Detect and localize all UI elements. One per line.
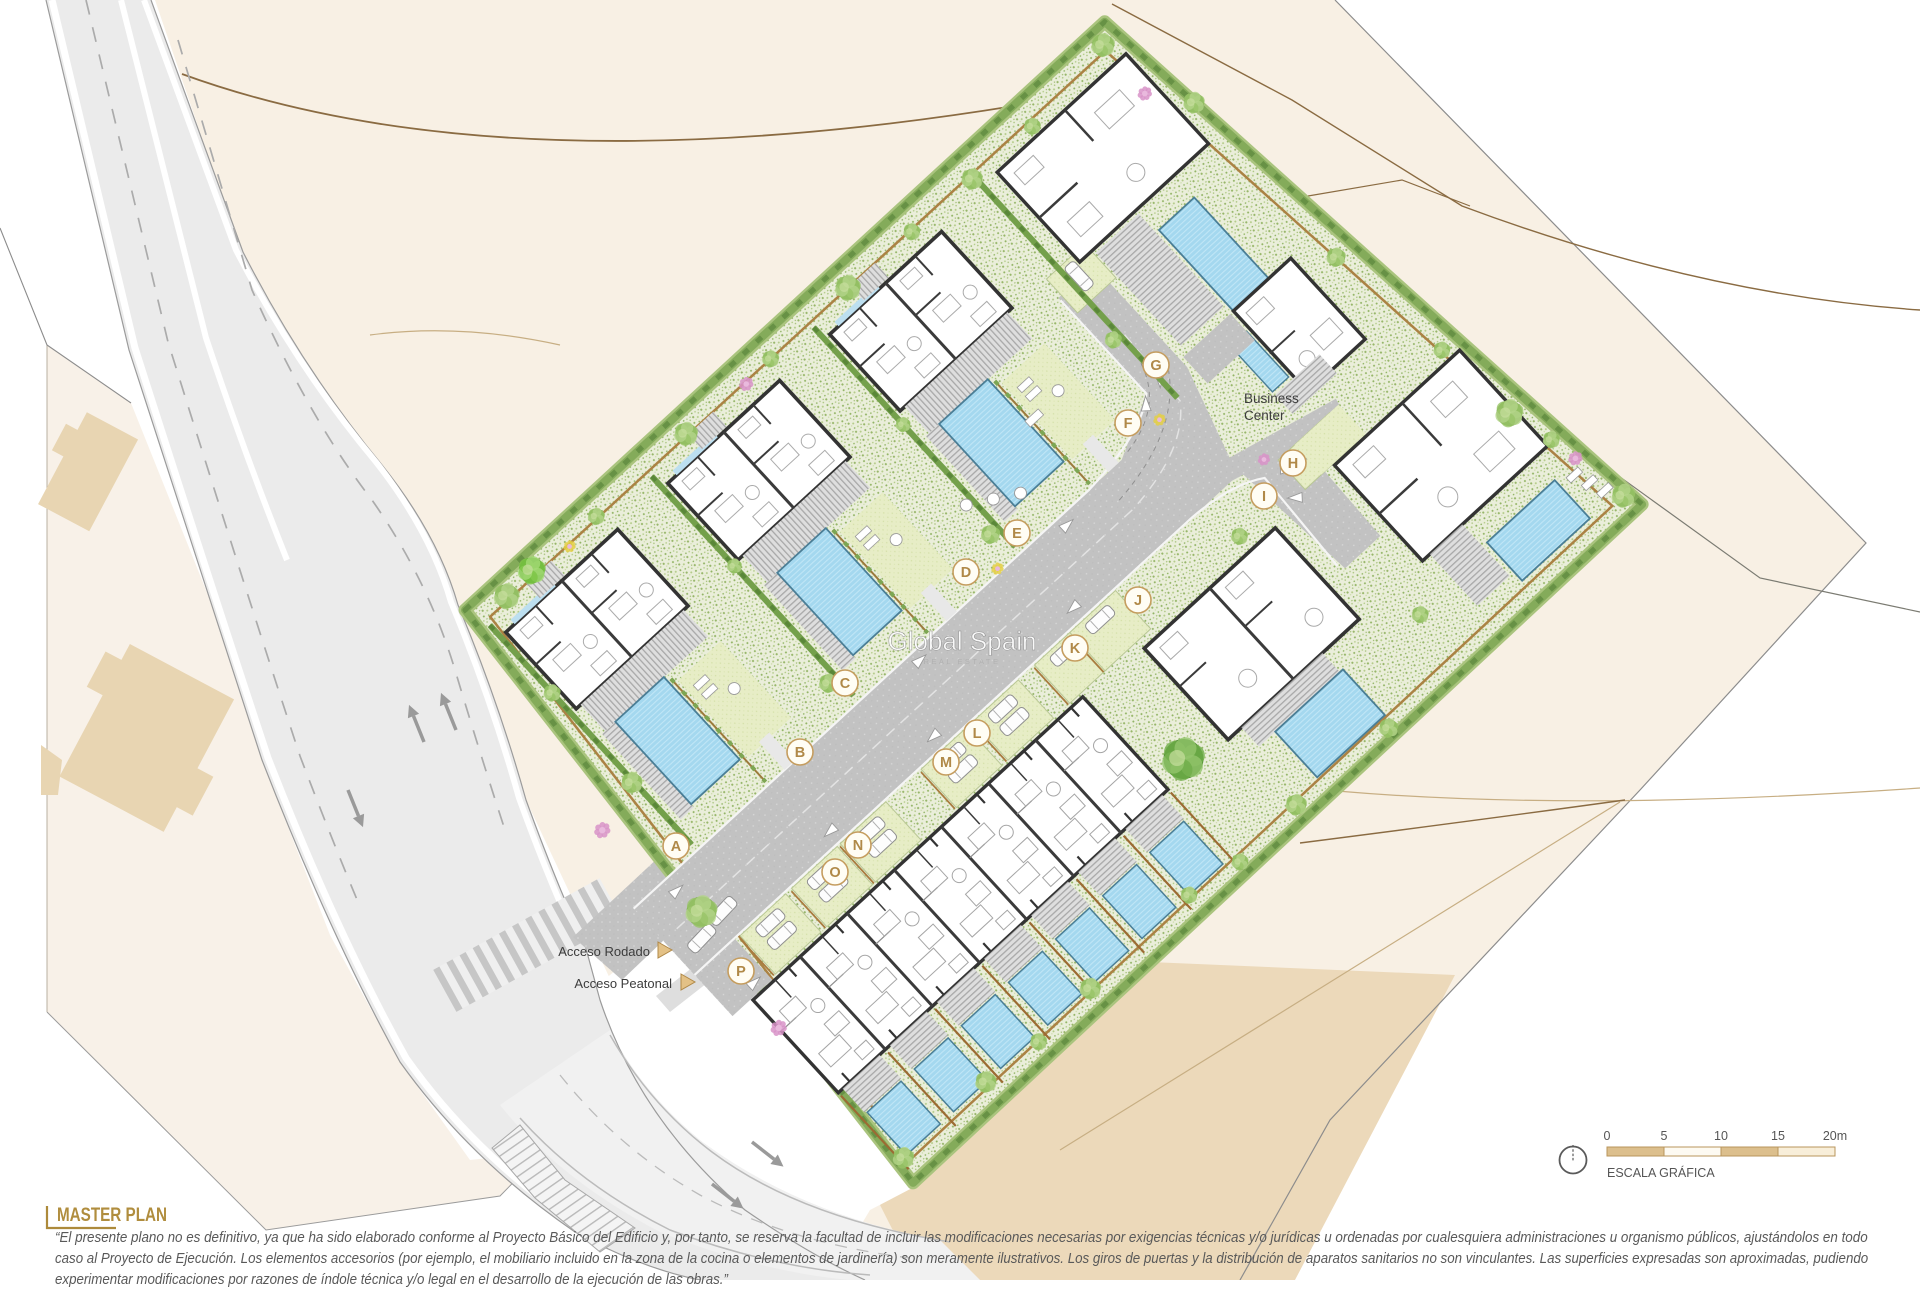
svg-text:B: B bbox=[795, 745, 805, 761]
svg-text:Global Spain: Global Spain bbox=[888, 626, 1037, 656]
svg-text:Acceso Rodado: Acceso Rodado bbox=[558, 944, 650, 959]
svg-text:D: D bbox=[961, 565, 971, 581]
svg-text:L: L bbox=[973, 726, 982, 742]
svg-text:J: J bbox=[1134, 593, 1142, 609]
svg-text:MASTER PLAN: MASTER PLAN bbox=[57, 1204, 167, 1226]
svg-text:REAL ESTATE: REAL ESTATE bbox=[924, 657, 1001, 666]
svg-text:Business: Business bbox=[1244, 391, 1299, 406]
svg-text:10: 10 bbox=[1714, 1129, 1728, 1143]
svg-text:5: 5 bbox=[1661, 1129, 1668, 1143]
svg-text:H: H bbox=[1288, 456, 1298, 472]
svg-text:K: K bbox=[1070, 641, 1081, 657]
svg-text:A: A bbox=[671, 839, 682, 855]
svg-text:O: O bbox=[829, 865, 840, 881]
svg-text:M: M bbox=[940, 755, 952, 771]
svg-text:15: 15 bbox=[1771, 1129, 1785, 1143]
svg-text:Center: Center bbox=[1244, 408, 1285, 423]
svg-text:F: F bbox=[1124, 416, 1133, 432]
svg-text:Acceso Peatonal: Acceso Peatonal bbox=[574, 976, 672, 991]
svg-text:0: 0 bbox=[1604, 1129, 1611, 1143]
svg-text:I: I bbox=[1262, 489, 1266, 505]
svg-text:P: P bbox=[736, 964, 746, 980]
svg-text:E: E bbox=[1012, 526, 1022, 542]
svg-text:C: C bbox=[840, 676, 851, 692]
svg-text:G: G bbox=[1150, 358, 1161, 374]
svg-text:N: N bbox=[853, 838, 863, 854]
svg-text:ESCALA GRÁFICA: ESCALA GRÁFICA bbox=[1607, 1165, 1715, 1180]
svg-text:20m: 20m bbox=[1823, 1129, 1847, 1143]
